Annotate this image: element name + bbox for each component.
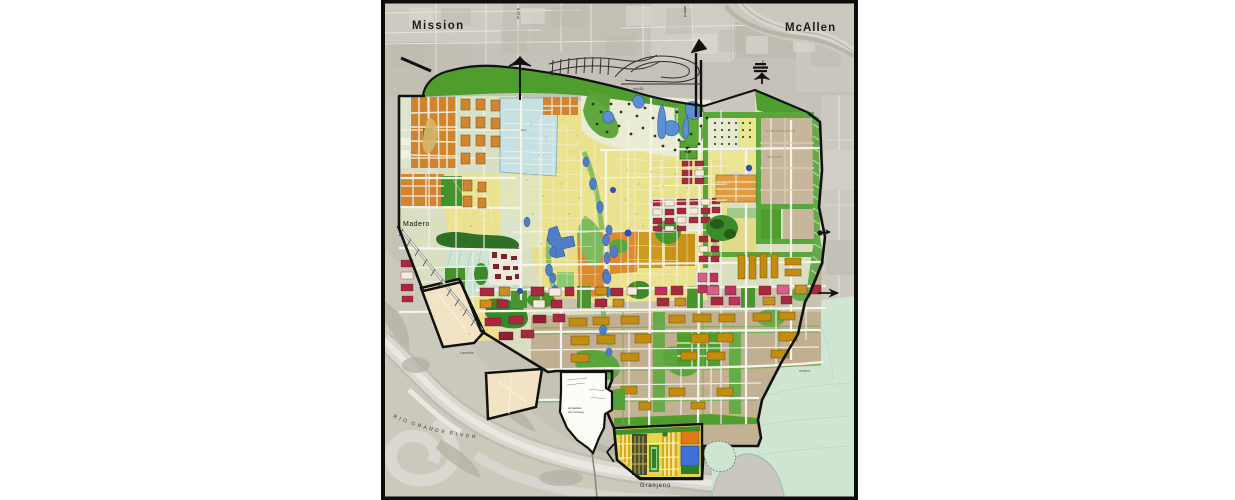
svg-text:Madero: Madero (403, 221, 430, 228)
svg-text:wetland: wetland (799, 369, 810, 373)
svg-text:u r b a n r e s e r v e: u r b a n r e s e r v e (766, 129, 795, 133)
svg-text:intl crossing: intl crossing (568, 410, 584, 414)
svg-text:exp 83: exp 83 (761, 60, 765, 69)
svg-text:lake: lake (521, 128, 527, 132)
svg-text:Mission: Mission (412, 20, 465, 32)
svg-text:exp 83: exp 83 (633, 87, 643, 91)
svg-text:r e s e r v e: r e s e r v e (766, 155, 782, 159)
svg-text:Granjeno: Granjeno (640, 483, 671, 489)
svg-text:McAllen: McAllen (785, 22, 836, 34)
svg-text:ware rd: ware rd (683, 6, 687, 17)
svg-text:N 23 rd: N 23 rd (516, 8, 520, 19)
svg-text:Laureles: Laureles (460, 351, 474, 355)
